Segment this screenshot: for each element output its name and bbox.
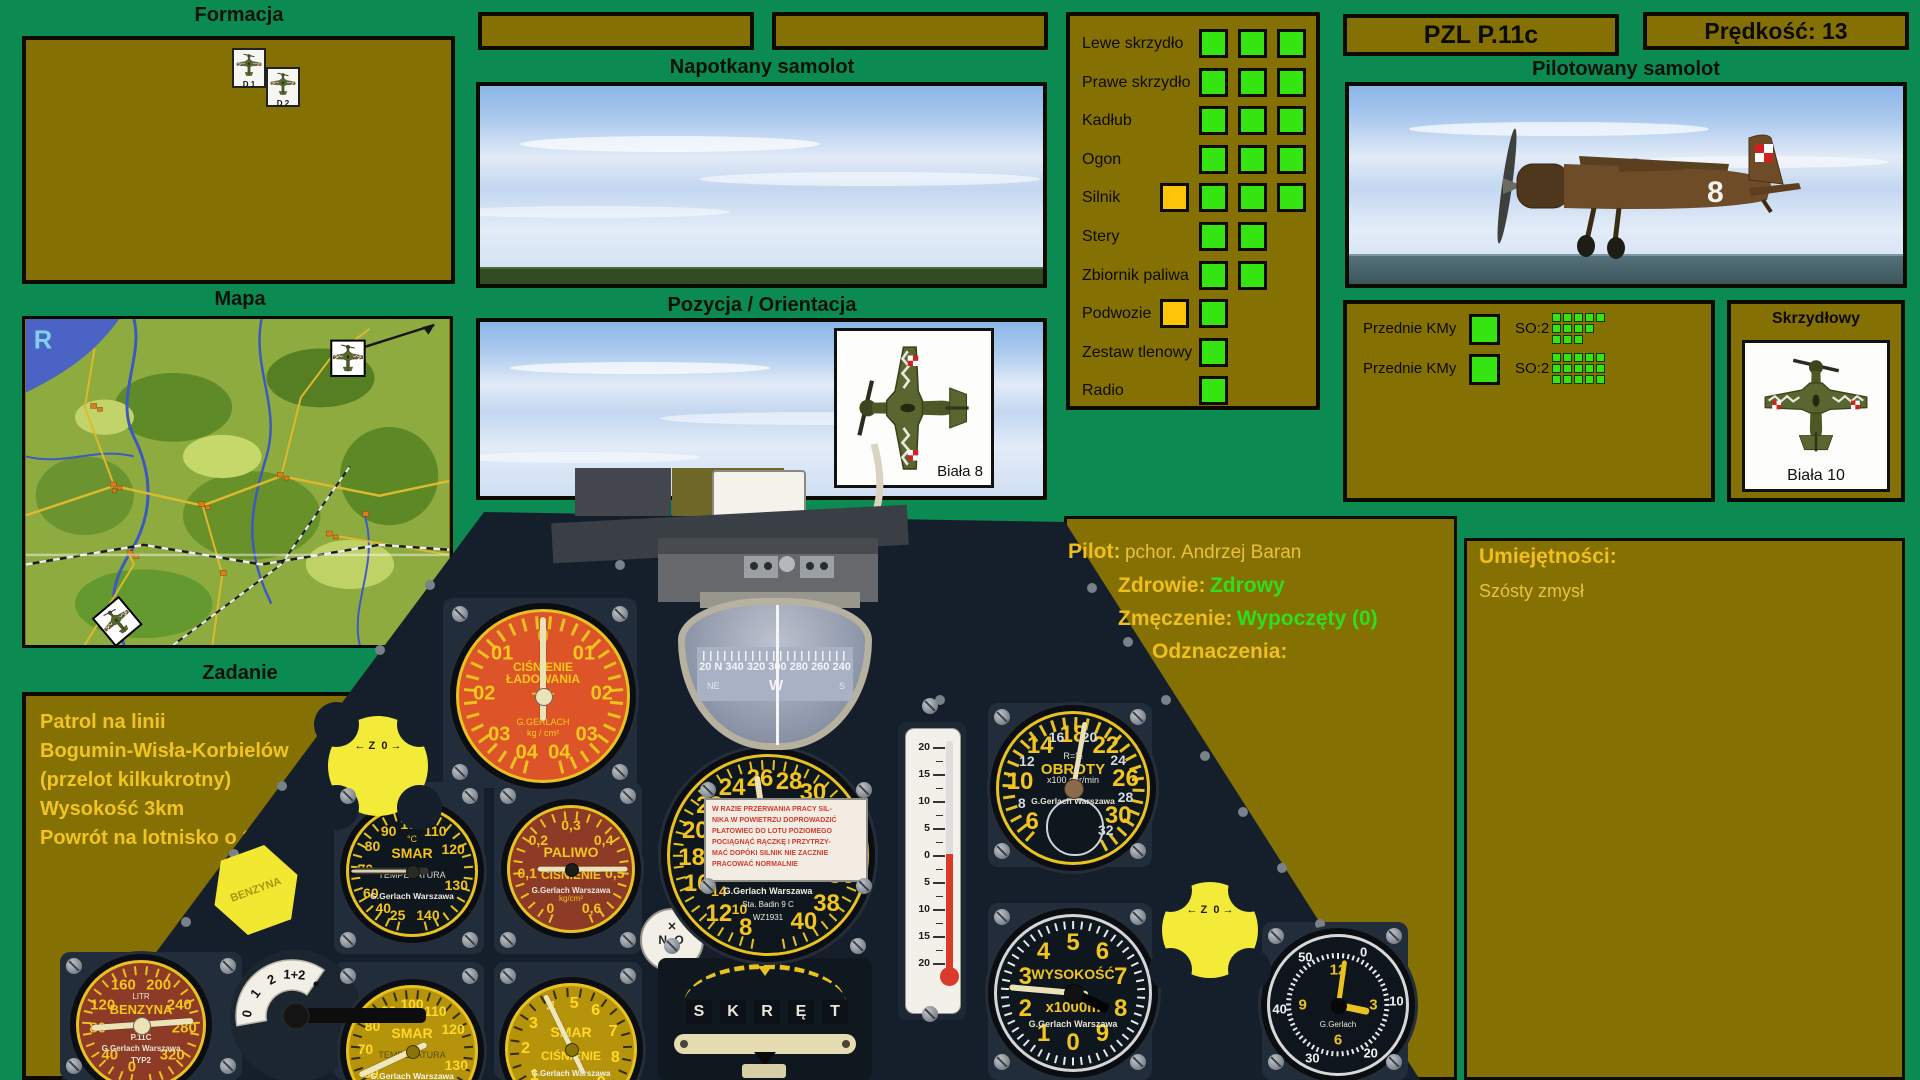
gauge-tick — [1347, 1050, 1350, 1056]
gauge-tick — [1030, 1044, 1037, 1052]
ammo-cell — [1563, 324, 1572, 333]
rivet — [1087, 583, 1097, 593]
ammo-cell — [1563, 353, 1572, 362]
turn-indicator-letter: R — [754, 1000, 780, 1024]
gauge-tick — [830, 789, 839, 797]
rivet — [1315, 919, 1325, 929]
gauge-tick — [1378, 979, 1383, 983]
decorations-label: Odznaczenia: — [1152, 640, 1287, 663]
ammo-cell — [1585, 353, 1594, 362]
gauge-tick — [1126, 954, 1134, 960]
skills-title: Umiejętności: — [1479, 545, 1617, 569]
thermometer-tick — [933, 801, 945, 803]
ammo-cell — [1552, 353, 1561, 362]
rivet — [1123, 637, 1133, 647]
gun-ammo-label: SO:2 — [1515, 320, 1549, 337]
damage-cell — [1238, 29, 1267, 58]
gauge-tick — [1116, 1039, 1123, 1046]
ammo-cell — [1596, 375, 1605, 384]
compass-card: 20 N 340 320 300 280 260 240 NE W S — [697, 647, 853, 701]
damage-item-label: Stery — [1082, 228, 1119, 246]
screw — [66, 1058, 82, 1074]
gauge-tick — [1287, 1014, 1293, 1017]
screw — [500, 968, 516, 984]
rivet — [1277, 863, 1287, 873]
gauge-tick — [513, 1064, 523, 1069]
gauge-number: 5 — [570, 995, 579, 1013]
gauge-label: BENZYNA — [79, 1002, 203, 1017]
damage-cell — [1238, 261, 1267, 290]
warning-placard: W RAZIE PRZERWANIA PRACY SIL-NIKA W POWI… — [704, 798, 868, 882]
damage-item-label: Kadłub — [1082, 112, 1132, 130]
gauge-number: 4 — [1037, 938, 1050, 966]
gauge-tick — [600, 999, 607, 1008]
thermometer-tick — [933, 774, 945, 776]
formation-header: Formacja — [195, 4, 284, 27]
pilot-decorations-line: Odznaczenia: — [1152, 640, 1287, 664]
gauge-label: R=½ — [999, 751, 1147, 761]
screw — [700, 782, 716, 798]
thermometer-number: 10 — [908, 795, 930, 807]
screw — [462, 788, 478, 804]
task-line: Patrol na linii — [40, 708, 293, 737]
wingman-title: Skrzydłowy — [1731, 310, 1901, 328]
screw — [664, 938, 680, 954]
damage-panel: Lewe skrzydłoPrawe skrzydłoKadłubOgonSil… — [1066, 12, 1320, 410]
thermometer-red-column — [946, 854, 953, 971]
rivet — [615, 560, 625, 570]
gauge-tick — [1321, 1049, 1324, 1055]
turn-indicator: SKRĘT — [658, 958, 872, 1080]
ammo-cell — [1563, 313, 1572, 322]
damage-item-label: Radio — [1082, 382, 1124, 400]
screw — [620, 788, 636, 804]
gauge-tick — [520, 1014, 529, 1021]
gauge-number: 140 — [416, 907, 439, 923]
screw — [1130, 843, 1146, 859]
gauge-tick — [1037, 929, 1043, 937]
damage-cell — [1277, 106, 1306, 135]
thermometer-tick-minor — [936, 761, 943, 763]
damage-cell — [1199, 29, 1228, 58]
fatigue-label: Zmęczenie: — [1118, 607, 1232, 630]
screw — [1130, 709, 1146, 725]
gauge-tick — [496, 630, 506, 642]
gun-status-cell — [1469, 354, 1500, 385]
gauge-tick — [1299, 1035, 1304, 1040]
gauge-tick — [508, 623, 516, 636]
gauge-number: 40 — [1272, 1002, 1286, 1017]
pilot-health-line: Zdrowie: Zdrowy — [1118, 574, 1285, 598]
gauge-label: G.Gerlach Warszawa — [508, 1069, 634, 1078]
gauge-tick — [1001, 996, 1009, 999]
gauge-tick — [1372, 970, 1377, 975]
gauge-tick — [1342, 954, 1344, 960]
compass-lubber-line — [776, 605, 779, 745]
gauge-tick — [1054, 923, 1058, 932]
gauge-needle — [351, 869, 412, 872]
piloted-header: Pilotowany samolot — [1532, 58, 1720, 81]
wingman-card: Biała 10 — [1742, 340, 1890, 492]
gauge-number: 0 — [1066, 1029, 1079, 1057]
gauge-number: 9 — [1298, 997, 1306, 1014]
gauge-hub — [565, 863, 579, 877]
gauge-hub — [1064, 779, 1084, 799]
damage-cell — [1199, 68, 1228, 97]
gauge-tick — [145, 966, 148, 975]
gauge-tick — [1337, 1051, 1339, 1056]
gauge-tick — [579, 989, 583, 999]
damage-cell — [1277, 145, 1306, 174]
gauge-tick — [1321, 956, 1324, 962]
screw — [1130, 1054, 1146, 1070]
gauge-tick — [1356, 1047, 1360, 1053]
gauge-number: 160 — [111, 977, 136, 994]
gauge-number: 0,3 — [561, 817, 580, 833]
damage-item-label: Ogon — [1082, 151, 1121, 169]
gauge-label: °C — [349, 834, 475, 844]
gauge-tick — [559, 619, 565, 632]
gauge-tick — [717, 927, 724, 936]
gauge-tick — [579, 751, 589, 763]
screw — [1130, 909, 1146, 925]
gauge-label: G.Gerlach Warszawa — [79, 1044, 203, 1053]
gauge-tick — [1116, 940, 1123, 947]
gauge-tick — [1383, 1014, 1389, 1017]
screw — [922, 1006, 938, 1022]
gauge-number: 10 — [1389, 993, 1403, 1008]
damage-cell — [1277, 29, 1306, 58]
thermometer-tick-minor — [936, 869, 943, 871]
ammo-cell — [1585, 364, 1594, 373]
formation-panel: D 1D 2 — [22, 36, 455, 284]
gauge-number: 30 — [1305, 1050, 1319, 1065]
thermometer-tick — [933, 909, 945, 911]
damage-cell — [1199, 299, 1228, 328]
gauge-tick — [1110, 1044, 1117, 1052]
encountered-header: Napotkany samolot — [670, 56, 854, 79]
thermometer-number: 15 — [908, 930, 930, 942]
aircraft-name-box: PZL P.11c — [1343, 14, 1619, 56]
gauge-tick — [1137, 988, 1145, 990]
top-empty-box-1 — [478, 12, 754, 50]
thermometer-number: 5 — [908, 876, 930, 888]
guns-panel: Przednie KMySO:2Przednie KMySO:2 — [1343, 300, 1715, 502]
gauge-tick — [521, 619, 527, 632]
gauge-label: G.Gerlach — [1270, 1020, 1406, 1029]
gauge-tick — [590, 992, 595, 1001]
thermometer-number: 20 — [908, 957, 930, 969]
gauge-tick — [108, 1066, 115, 1075]
thermometer-tick — [933, 747, 945, 749]
screw — [612, 764, 628, 780]
gauge-tick — [581, 630, 591, 642]
damage-item-label: Zestaw tlenowy — [1082, 344, 1192, 362]
gauge-tick — [1017, 1033, 1025, 1040]
damage-cell — [1277, 68, 1306, 97]
piloted-view: 8 — [1345, 82, 1907, 288]
obroty-gauge: 18222630141062024283216128R=½OBROTYx100 … — [996, 711, 1150, 865]
damage-item-label: Zbiornik paliwa — [1082, 267, 1189, 285]
gauge-tick — [1352, 956, 1355, 962]
gauge-tick — [1023, 940, 1030, 947]
screw — [340, 788, 356, 804]
gauge-tick — [1046, 925, 1051, 934]
gauge-number: 3 — [1369, 997, 1377, 1014]
gauge-tick — [1303, 1039, 1308, 1044]
gauge-tick — [118, 1071, 123, 1080]
gauge-tick — [1383, 994, 1389, 997]
thermometer-tick-minor — [936, 815, 943, 817]
screw — [1386, 1054, 1402, 1070]
pilot-name-line: Pilot: pchor. Andrzej Baran — [1068, 540, 1301, 564]
svg-text:8: 8 — [1707, 176, 1724, 209]
gauge-tick — [463, 866, 473, 869]
damage-item-label: Podwozie — [1082, 305, 1151, 323]
thermometer-tick-minor — [936, 842, 943, 844]
gauge-tick — [609, 1008, 617, 1016]
ammo-cell — [1552, 313, 1561, 322]
thermometer-tick — [933, 855, 945, 857]
damage-cell — [1277, 183, 1306, 212]
screw — [700, 878, 716, 894]
gauge-tick — [442, 912, 449, 921]
gauge-tick — [597, 649, 609, 659]
ammo-cell — [1563, 335, 1572, 344]
thermometer-tick-minor — [936, 950, 943, 952]
fatigue-value: Wypoczęty (0) — [1237, 607, 1378, 630]
gauge-tick — [1368, 1039, 1373, 1044]
thermometer-tick — [933, 963, 945, 965]
gauge-tick — [1347, 954, 1350, 960]
pilot-fatigue-line: Zmęczenie: Wypoczęty (0) — [1118, 607, 1378, 631]
gauge-number: 200 — [146, 977, 171, 994]
gauge-tick — [1063, 1056, 1066, 1065]
gauge-number: 16 — [1049, 729, 1065, 745]
damage-cell — [1199, 222, 1228, 251]
gauge-tick — [1287, 994, 1293, 997]
wingman-panel: Skrzydłowy Biała 10 — [1727, 300, 1905, 502]
damage-cell — [1238, 106, 1267, 135]
ammo-cell — [1574, 324, 1583, 333]
rivet — [277, 781, 287, 791]
svg-text:1+2: 1+2 — [283, 966, 306, 982]
gauge-tick — [821, 921, 829, 930]
gauge-number: 04 — [516, 741, 538, 764]
gauge-tick — [1327, 1050, 1330, 1056]
gauge-tick — [1122, 946, 1130, 953]
gauge-label: TYP2 — [79, 1056, 203, 1065]
gauge-tick — [1030, 934, 1037, 942]
damage-item-label: Lewe skrzydło — [1082, 35, 1183, 53]
thermometer-tick-minor — [936, 923, 943, 925]
screw — [994, 709, 1010, 725]
turn-indicator-letter: K — [720, 1000, 746, 1024]
screw — [856, 878, 872, 894]
ground-strip — [480, 267, 1043, 284]
map-image: R — [25, 319, 450, 645]
damage-cell — [1199, 145, 1228, 174]
formation-plane-label: D 1 — [234, 81, 264, 89]
own-plane-label: Biała 8 — [937, 463, 983, 480]
wingman-plane-icon — [1752, 345, 1880, 463]
position-header: Pozycja / Orientacja — [668, 294, 857, 317]
gauge-tick — [1327, 954, 1330, 960]
gauge-tick — [1037, 1048, 1043, 1056]
gauge-hub — [1064, 984, 1084, 1004]
gauge-needle — [537, 866, 627, 871]
speed-box: Prędkość: 13 — [1643, 12, 1909, 50]
trim-knob-right[interactable]: ← Z 0 → — [1162, 882, 1258, 978]
gauge-tick — [566, 988, 569, 998]
gauge-label: WYSOKOŚĆ — [997, 966, 1149, 982]
thermometer-number: 5 — [908, 822, 930, 834]
gauge-label: G.Gerlach Warszawa — [349, 891, 475, 901]
magneto-lever[interactable] — [296, 1008, 426, 1023]
gauge-number: 40 — [376, 900, 392, 916]
screw — [220, 958, 236, 974]
gauge-tick — [1110, 934, 1117, 942]
gauge-tick — [463, 1046, 473, 1049]
compass-mount — [658, 538, 878, 602]
gauge-tick — [1096, 926, 1101, 935]
gauge-number: 25 — [390, 907, 406, 923]
windshield-frame-left — [575, 468, 671, 516]
gauge-tick — [1293, 979, 1298, 983]
pilot-label: Pilot: — [1068, 540, 1121, 563]
gauge-label: WZ1931 — [670, 913, 866, 922]
gauge-label: LITR — [79, 992, 203, 1001]
screw — [1268, 1054, 1284, 1070]
compass-letter-s: S — [839, 681, 845, 691]
gauge-tick — [1095, 1052, 1100, 1061]
screw — [994, 1054, 1010, 1070]
ammo-cell — [1574, 364, 1583, 373]
gauge-tick — [540, 819, 546, 828]
ammo-cell — [1596, 313, 1605, 322]
task-line: (przelot kilkukrotny) — [40, 766, 293, 795]
paliwo-gauge: 0,30,20,100,40,50,6PALIWOCIŚNIENIEG.Gerl… — [507, 805, 635, 933]
ammo-cell — [1552, 364, 1561, 373]
gauge-number: 28 — [776, 768, 803, 796]
gun-ammo-label: SO:2 — [1515, 360, 1549, 377]
gauge-tick — [1287, 999, 1293, 1001]
screw — [856, 782, 872, 798]
benzyna-gauge: 16020012024080280403200LITRBENZYNAP.11CG… — [76, 960, 206, 1080]
gauge-tick — [782, 939, 786, 949]
gauge-tick — [1045, 1052, 1050, 1061]
gauge-tick — [1342, 1051, 1344, 1057]
ammo-cell — [1552, 335, 1561, 344]
ammo-cell — [1574, 353, 1583, 362]
damage-cell — [1238, 68, 1267, 97]
gauge-tick — [1307, 1042, 1311, 1047]
screw — [462, 932, 478, 948]
gauge-tick — [1054, 1055, 1058, 1064]
screw — [922, 698, 938, 714]
compass-numbers: 20 N 340 320 300 280 260 240 — [697, 661, 853, 673]
gauge-tick — [372, 824, 380, 833]
game-screen: Formacja Napotkany samolot Mapa Zadanie … — [0, 0, 1920, 1080]
rivet — [1200, 751, 1210, 761]
gauge-tick — [173, 980, 181, 988]
rivet — [1161, 695, 1171, 705]
screw — [994, 843, 1010, 859]
screw — [340, 932, 356, 948]
gauge-tick — [1360, 960, 1364, 965]
gauge-tick — [1099, 840, 1107, 852]
map-panel: R — [22, 316, 453, 648]
ammo-cell — [1563, 375, 1572, 384]
gauge-tick — [1017, 946, 1025, 953]
gauge-tick — [158, 1071, 163, 1080]
gauge-number: 50 — [1298, 949, 1312, 964]
gauge-tick — [1023, 1039, 1030, 1046]
gauge-number: 20 — [1363, 1046, 1377, 1061]
gauge-tick — [1372, 1035, 1377, 1040]
gauge-tick — [619, 860, 628, 863]
slip-bar — [674, 1034, 856, 1054]
turn-indicator-letter: Ę — [788, 1000, 814, 1024]
gauge-number: 6 — [591, 1002, 600, 1020]
gauge-tick — [366, 905, 374, 913]
thermometer-number: 15 — [908, 768, 930, 780]
screw — [612, 606, 628, 622]
gauge-tick — [804, 769, 810, 779]
gauge-label: kg / cm² — [459, 728, 627, 738]
skill-item: Szósty zmysł — [1479, 581, 1584, 602]
gauge-tick — [1375, 1032, 1380, 1036]
gauge-tick — [1289, 988, 1295, 991]
gauge-tick — [1337, 953, 1339, 958]
gauge-tick — [1332, 1051, 1334, 1057]
map-header: Mapa — [214, 288, 265, 311]
ammo-cell — [1574, 313, 1583, 322]
magneto-selector[interactable]: 0121+2 — [230, 946, 450, 1080]
gauge-tick — [1332, 954, 1334, 960]
gauge-tick — [551, 814, 556, 823]
screw — [620, 968, 636, 984]
slip-pedestal — [742, 1064, 786, 1078]
gauge-tick — [1296, 1032, 1301, 1036]
ammo-cell — [1585, 375, 1594, 384]
gauge-tick — [1382, 988, 1388, 991]
gauge-number: 6 — [1334, 1032, 1342, 1049]
gauge-hub — [1331, 998, 1347, 1014]
gauge-label: Sta. Badin 9 C — [670, 900, 866, 909]
thermometer-number: 0 — [908, 849, 930, 861]
ammo-cell — [1552, 324, 1561, 333]
gauge-subdial — [1046, 798, 1103, 855]
thermometer-bulb — [940, 967, 959, 986]
wingman-label: Biała 10 — [1745, 467, 1887, 485]
task-line: Bogumin-Wisła-Korbielów — [40, 737, 293, 766]
ammo-cell — [1563, 364, 1572, 373]
gauge-hub — [133, 1017, 151, 1035]
gauge-tick — [596, 819, 602, 828]
gauge-tick — [1384, 1009, 1390, 1011]
gauge-label: SMAR — [349, 845, 475, 861]
gauge-tick — [513, 860, 522, 863]
damage-cell — [1199, 106, 1228, 135]
damage-cell — [1238, 222, 1267, 251]
thermometer-tick — [933, 936, 945, 938]
formation-plane: D 1 — [232, 48, 266, 88]
gauge-tick — [529, 1003, 537, 1011]
gauge-tick — [1375, 974, 1380, 978]
gauge-tick — [1303, 966, 1308, 971]
formation-plane-label: D 2 — [268, 100, 298, 108]
